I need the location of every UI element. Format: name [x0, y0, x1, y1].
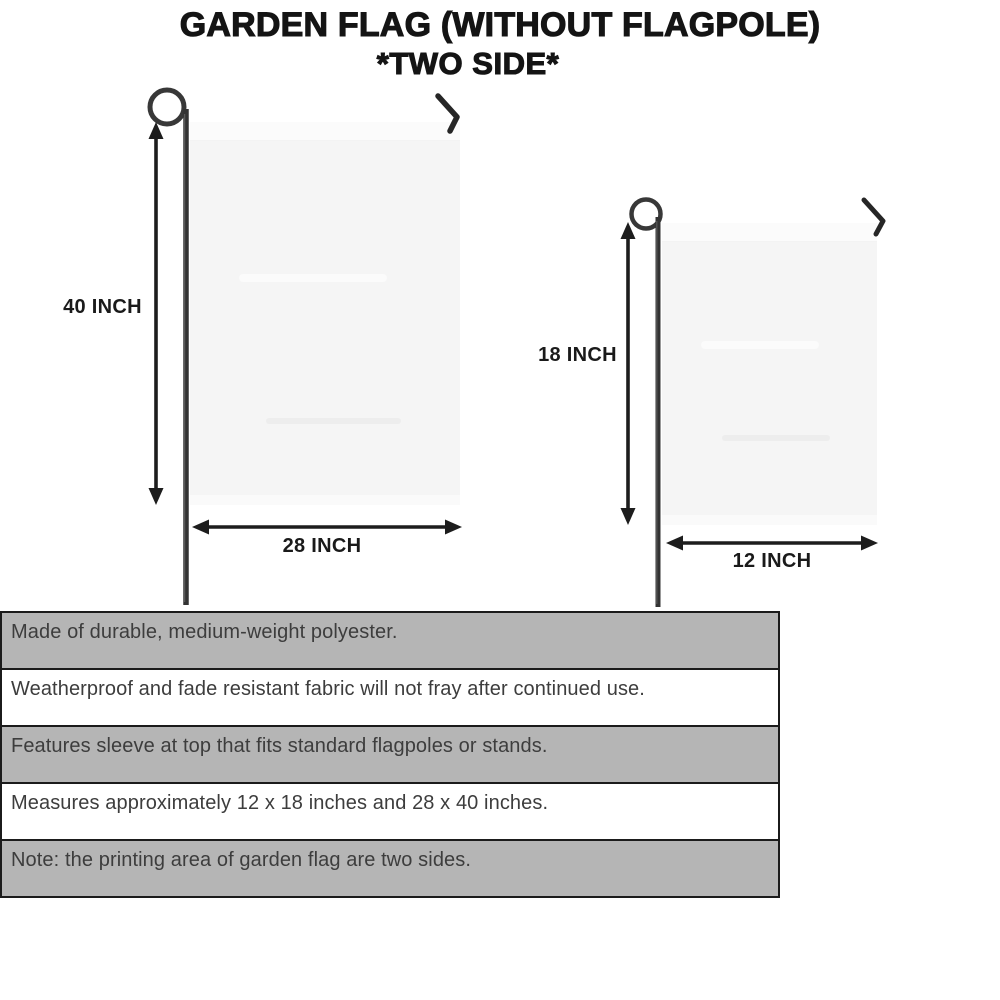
large-flag-width-arrow [192, 517, 462, 537]
feature-row-weatherproof: Weatherproof and fade resistant fabric w… [0, 668, 780, 727]
small-flag-sleeve [662, 223, 877, 242]
large-flag-width-label: 28 INCH [252, 535, 392, 558]
feature-row-material: Made of durable, medium-weight polyester… [0, 611, 780, 670]
garden-flag-infographic: GARDEN FLAG (WITHOUT FLAGPOLE) *TWO SIDE… [0, 0, 1000, 1000]
flag-fold-shadow [266, 418, 401, 424]
small-flag-canvas [662, 223, 877, 525]
feature-row-sleeve: Features sleeve at top that fits standar… [0, 725, 780, 784]
large-flag-hem [190, 495, 460, 505]
large-flag-sleeve [190, 122, 460, 141]
large-flag-height-label: 40 INCH [40, 296, 165, 319]
large-flag-clip-hook-icon [430, 88, 470, 140]
page-subtitle: *TWO SIDE* [0, 47, 936, 81]
feature-list: Made of durable, medium-weight polyester… [0, 611, 780, 898]
flag-fold-highlight [239, 274, 388, 282]
small-flag-width-label: 12 INCH [702, 550, 842, 573]
flag-fold-shadow [722, 435, 830, 441]
large-flag-canvas [190, 122, 460, 505]
small-flag-clip-hook-icon [856, 194, 894, 244]
feature-row-note: Note: the printing area of garden flag a… [0, 839, 780, 898]
feature-row-measures: Measures approximately 12 x 18 inches an… [0, 782, 780, 841]
small-flag-hem [662, 515, 877, 525]
small-flag-height-arrow [618, 222, 638, 525]
small-flag-height-label: 18 INCH [515, 344, 640, 367]
page-title: GARDEN FLAG (WITHOUT FLAGPOLE) [0, 6, 1000, 44]
flag-fold-highlight [701, 341, 819, 349]
